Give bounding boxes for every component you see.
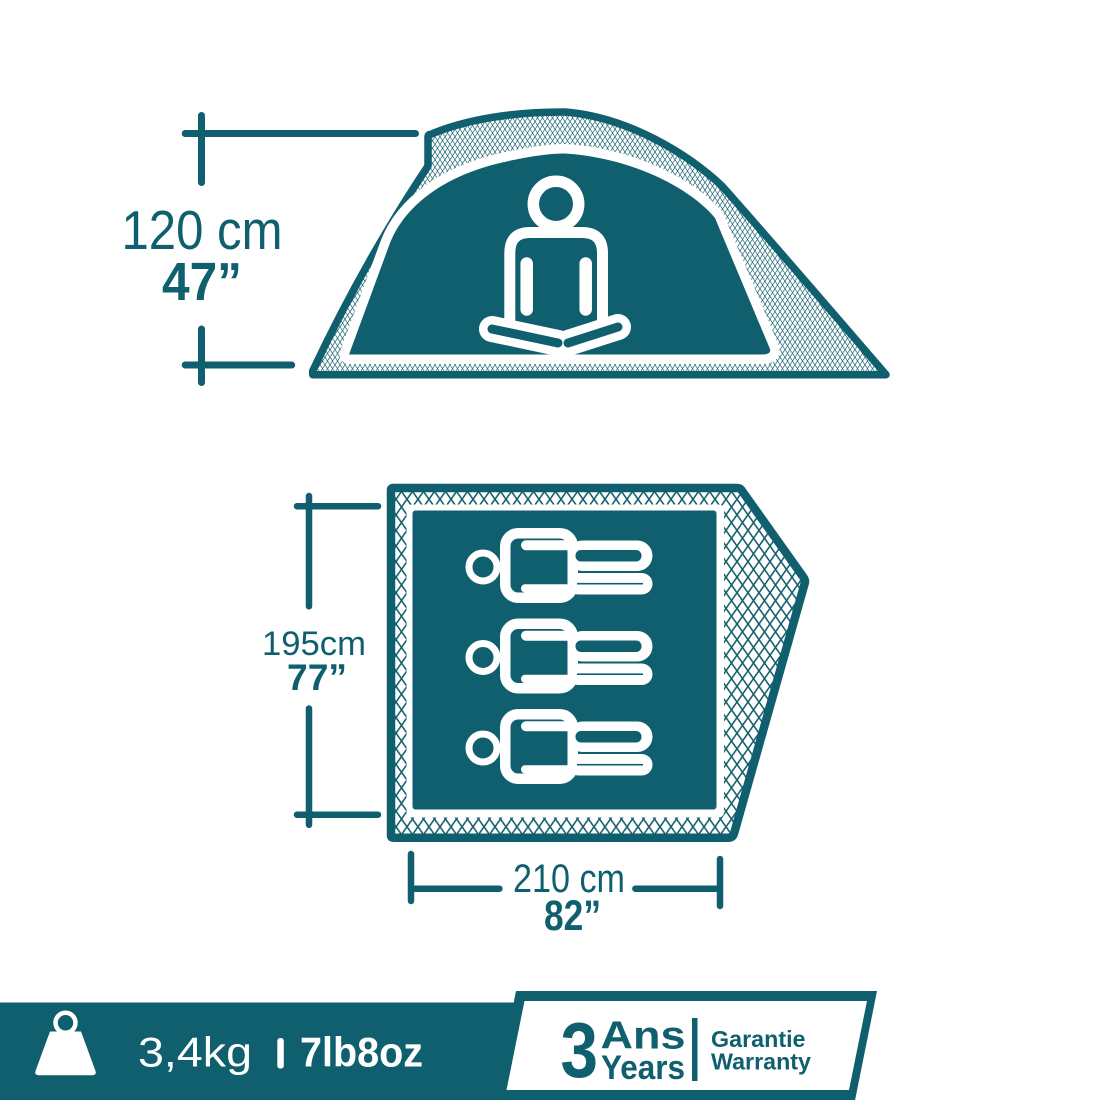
svg-text:Years: Years — [601, 1049, 685, 1087]
svg-text:82”: 82” — [544, 893, 601, 940]
svg-text:47”: 47” — [162, 253, 242, 312]
svg-text:7lb8oz: 7lb8oz — [300, 1028, 423, 1075]
svg-text:120 cm: 120 cm — [122, 199, 283, 261]
svg-text:Warranty: Warranty — [711, 1049, 811, 1075]
svg-text:3: 3 — [561, 1006, 599, 1094]
svg-text:77”: 77” — [287, 657, 347, 698]
svg-text:3,4kg: 3,4kg — [138, 1028, 252, 1075]
